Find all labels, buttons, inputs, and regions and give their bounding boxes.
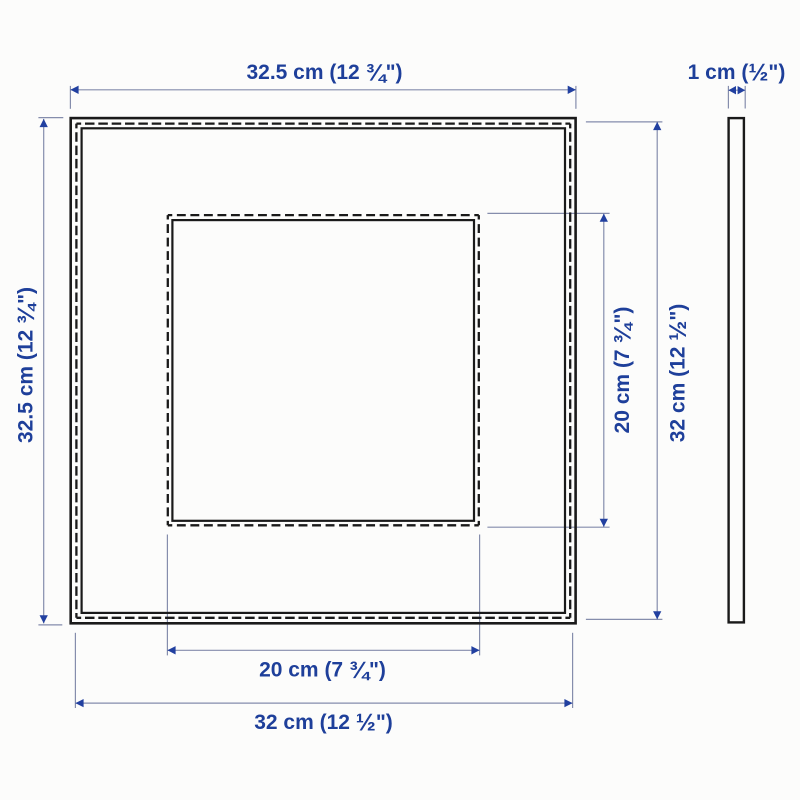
svg-text:20 cm (7 ¾"): 20 cm (7 ¾") <box>610 307 637 434</box>
svg-text:20 cm (7 ¾"): 20 cm (7 ¾") <box>259 657 386 684</box>
svg-text:32 cm (12 ½"): 32 cm (12 ½") <box>665 304 692 443</box>
svg-text:32.5 cm (12 ¾"): 32.5 cm (12 ¾") <box>13 287 40 443</box>
svg-text:32 cm (12 ½"): 32 cm (12 ½") <box>254 710 393 737</box>
svg-text:1 cm (½"): 1 cm (½") <box>688 60 786 87</box>
svg-text:32.5 cm (12 ¾"): 32.5 cm (12 ¾") <box>246 60 402 87</box>
